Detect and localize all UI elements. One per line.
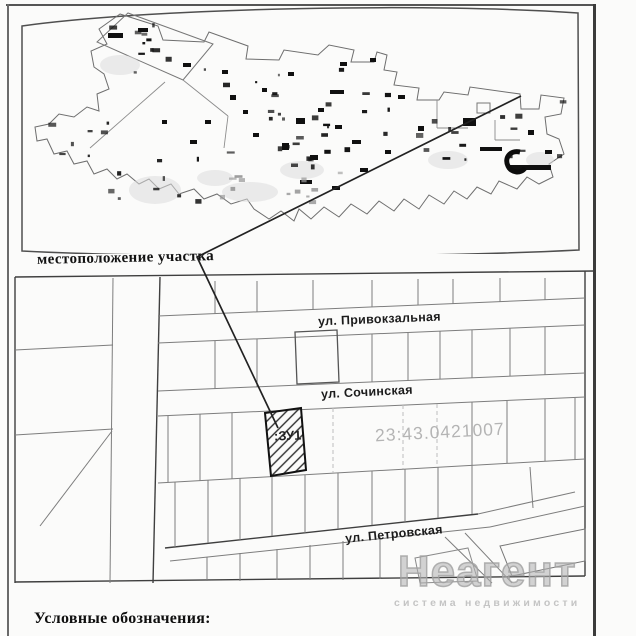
city-overview-map <box>16 6 582 254</box>
watermark-tagline-text: система недвижимости <box>394 597 580 609</box>
subject-parcel-label: :ЗУ1 <box>274 428 302 444</box>
legend-section-caption: Условные обозначения: <box>34 610 211 628</box>
scanned-land-plot-location-scheme: местоположение участка ул. Привокзальная… <box>0 0 636 636</box>
overview-map-caption: местоположение участка <box>37 248 214 269</box>
page-left-border <box>7 4 9 636</box>
watermark-brand-text: Неагент <box>394 550 580 594</box>
city-texture-patches <box>100 55 554 204</box>
highlighted-parcel-outline <box>295 330 339 384</box>
cadastral-plot-map <box>12 268 596 586</box>
site-watermark: Неагент система недвижимости <box>394 550 580 609</box>
parcel-grid-lines <box>15 271 594 583</box>
